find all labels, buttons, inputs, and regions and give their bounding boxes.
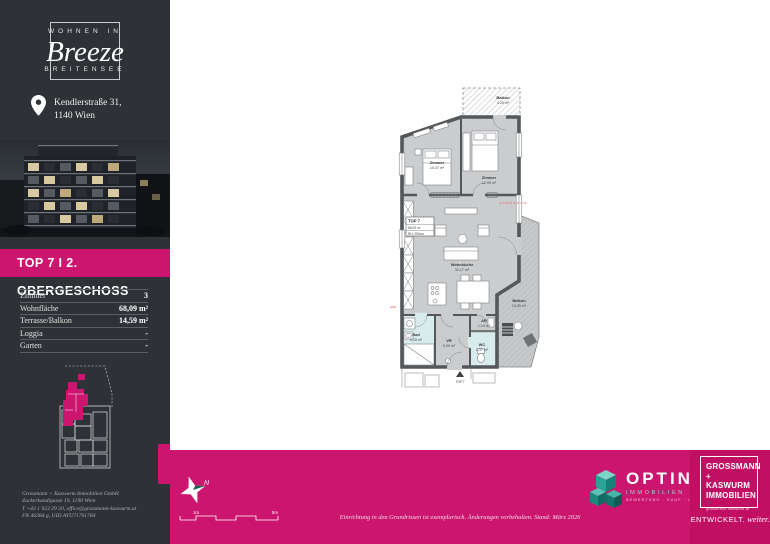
- context-walls: [402, 369, 495, 387]
- bathtub: [404, 344, 434, 365]
- developer-line: GROSSMANN: [706, 462, 757, 472]
- claim-script: weiter.: [747, 514, 769, 524]
- scale-1m-label: 1m: [193, 510, 200, 515]
- dresser: [405, 167, 413, 185]
- sidebar: WOHNEN IN Breeze BREITENSEE Kendlerstraß…: [0, 0, 170, 544]
- sofa: [444, 247, 478, 260]
- fact-value: 14,59 m²: [119, 316, 148, 325]
- developer-claim: ENTWICKELT. weiter.: [690, 514, 770, 524]
- kitchen-island: [428, 283, 446, 305]
- imprint-line: FN 46384 g, UID ATU71701784: [22, 513, 162, 520]
- room-label: VR: [446, 338, 452, 343]
- accent-square: [158, 444, 170, 484]
- logo-kicker: WOHNEN IN: [0, 28, 170, 35]
- room-label: Balkon: [512, 298, 526, 303]
- unit-info-box: TOP 7 68,09 m² RH: 250cm: [406, 217, 434, 236]
- north-compass-icon: N: [178, 474, 212, 506]
- fact-label: Loggia: [20, 329, 43, 338]
- entrance-label: TOP 7: [455, 380, 464, 384]
- room-label: WC: [479, 342, 486, 347]
- project-address: Kendlerstraße 31, 1140 Wien: [54, 97, 164, 123]
- armchair: [478, 225, 489, 236]
- facts-table: Zimmer 3 Wohnfläche 68,09 m² Terrasse/Ba…: [20, 289, 148, 353]
- room-label: Bad: [412, 332, 420, 337]
- location-pin-icon: [31, 95, 46, 116]
- room-area: 32,17 m²: [455, 268, 470, 272]
- unit-number: TOP 7: [408, 219, 421, 224]
- fact-value: 3: [144, 291, 148, 300]
- room-label: Zimmer: [482, 175, 497, 180]
- claim-caps: ENTWICKELT.: [690, 515, 745, 524]
- room-area: 1,14 m²: [478, 324, 491, 328]
- fact-label: Zimmer: [20, 291, 46, 300]
- room-area: 1,37 m²: [476, 348, 489, 352]
- north-label: N: [204, 480, 210, 487]
- building-photo: [0, 140, 170, 237]
- washing-machine: [404, 318, 415, 329]
- imprint-line: T +43 1 923 29 20, office@grossmann-kasw…: [22, 506, 162, 513]
- room-label: Zimmer: [430, 160, 445, 165]
- sideboard: [445, 208, 477, 214]
- logo-subtitle: BREITENSEE: [0, 66, 170, 73]
- floor-plan: Balkon 4,20 m² Zimmer 10,37 m² Zimmer 12…: [385, 75, 560, 395]
- room-area: 4,15 m²: [410, 338, 423, 342]
- fact-row-loggia: Loggia -: [20, 328, 148, 341]
- room-label: Wohnküche: [451, 262, 474, 267]
- highlighted-unit: [63, 374, 88, 426]
- fact-label: Terrasse/Balkon: [20, 316, 72, 325]
- logo-wordmark: Breeze: [0, 36, 170, 69]
- bed-right: [472, 131, 498, 171]
- imprint-line: Zuckerkandlgasse 19, 1190 Wien: [22, 498, 162, 505]
- developer-panel: GROSSMANN + KASWURM IMMOBILIEN grossmann…: [690, 450, 770, 544]
- room-area: 10,37 m²: [430, 166, 445, 170]
- room-area: 10,39 m²: [512, 304, 527, 308]
- armchair: [435, 225, 446, 236]
- footer-bar: N 1m 5m Einrichtung in den Grundrissen i…: [170, 450, 770, 544]
- fact-value: 68,09 m²: [119, 304, 148, 313]
- scale-bar: 1m 5m: [178, 508, 282, 524]
- fact-value: -: [145, 329, 148, 338]
- room-label: Balkon: [496, 95, 510, 100]
- fact-label: Garten: [20, 341, 42, 350]
- developer-line: + KASWURM: [706, 472, 757, 491]
- room-area: 5,90 m²: [443, 344, 456, 348]
- fact-row-wohnflaeche: Wohnfläche 68,09 m²: [20, 303, 148, 316]
- flyer-page: WOHNEN IN Breeze BREITENSEE Kendlerstraß…: [0, 0, 770, 544]
- fact-row-terrasse: Terrasse/Balkon 14,59 m²: [20, 315, 148, 328]
- address-line-2: 1140 Wien: [54, 110, 164, 123]
- imprint-line: Grossmann + Kaswurm Immobilien GmbH: [22, 491, 162, 498]
- unit-room-height: RH: 250cm: [408, 232, 424, 236]
- optin-logo-icon: [590, 468, 622, 510]
- coffee-table: [458, 235, 467, 244]
- developer-website: grossmann-kaswurm.at: [706, 507, 757, 511]
- disclaimer: Einrichtung in den Grundrissen ist exemp…: [320, 514, 600, 521]
- room-area: 12,99 m²: [482, 181, 497, 185]
- developer-logo-box: GROSSMANN + KASWURM IMMOBILIEN grossmann…: [700, 456, 758, 508]
- room-area: 4,20 m²: [497, 101, 510, 105]
- fact-label: Wohnfläche: [20, 304, 58, 313]
- room-label: AR: [481, 318, 487, 323]
- balcony-top: [463, 88, 520, 117]
- site-plan: [35, 362, 135, 480]
- imprint: Grossmann + Kaswurm Immobilien GmbH Zuck…: [22, 491, 162, 521]
- fact-value: -: [145, 341, 148, 350]
- unit-banner: TOP 7 I 2. OBERGESCHOSS: [0, 249, 170, 277]
- scale-5m-label: 5m: [272, 510, 279, 515]
- wardrobe: [463, 133, 470, 171]
- fact-row-garten: Garten -: [20, 340, 148, 353]
- unit-area: 68,09 m²: [408, 226, 421, 230]
- developer-line: IMMOBILIEN: [706, 491, 757, 501]
- entrance-marker: TOP 7: [455, 371, 464, 384]
- address-line-1: Kendlerstraße 31,: [54, 97, 164, 110]
- fact-row-zimmer: Zimmer 3: [20, 290, 148, 303]
- nightstand: [415, 149, 421, 155]
